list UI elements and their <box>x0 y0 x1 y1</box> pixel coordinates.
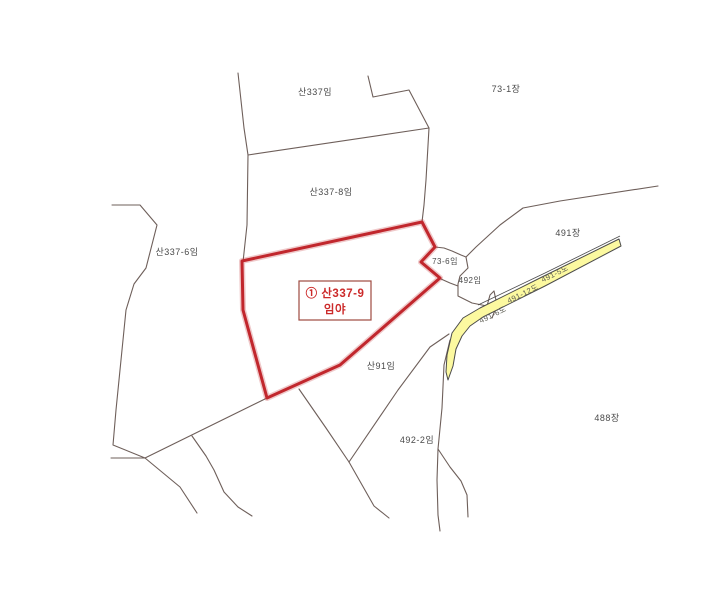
boundary-line <box>466 186 658 257</box>
highlight-label-line1: ① 산337-9 <box>306 286 365 300</box>
boundary-line <box>248 128 429 155</box>
boundary-line <box>238 73 248 262</box>
parcel-label-san91: 산91임 <box>367 360 396 371</box>
boundary-line <box>441 279 458 286</box>
parcel-label-492: 492임 <box>459 276 482 285</box>
boundary-line <box>422 128 429 222</box>
highlight-label-line2: 임야 <box>324 302 346 316</box>
parcel-label-492-2: 492-2임 <box>400 434 434 445</box>
boundary-line <box>437 449 440 531</box>
boundary-line <box>192 436 252 516</box>
parcel-label-73-1: 73-1장 <box>492 84 521 94</box>
boundary-line <box>368 76 429 128</box>
boundary-line <box>349 462 389 518</box>
boundary-line <box>145 398 267 458</box>
road-parcel <box>446 236 621 380</box>
boundary-line <box>299 389 349 462</box>
boundary-line <box>112 205 157 458</box>
parcel-label-491: 491장 <box>555 228 580 238</box>
boundary-line <box>145 458 197 513</box>
parcel-label-73-6: 73-6임 <box>432 257 458 266</box>
parcel-label-san337-8: 산337-8임 <box>309 186 352 197</box>
road-labels: 491-5도 491-12도 491-6도 <box>478 263 570 325</box>
boundary-line <box>435 247 466 257</box>
parcel-label-488: 488장 <box>594 413 619 423</box>
parcel-labels: 산337임 73-1장 산337-8임 산337-6임 73-6임 492임 4… <box>155 84 619 445</box>
road-label-491-12: 491-12도 <box>506 282 540 305</box>
cadastral-map: 산337임 73-1장 산337-8임 산337-6임 73-6임 492임 4… <box>0 0 706 600</box>
parcel-label-san337: 산337임 <box>298 86 332 97</box>
road-edge-line <box>478 236 620 305</box>
boundary-line <box>438 449 468 517</box>
parcel-boundaries <box>111 73 658 531</box>
highlight-label-box: ① 산337-9 임야 <box>299 281 371 320</box>
parcel-label-san337-6: 산337-6임 <box>155 246 198 257</box>
cadastral-map-svg: 산337임 73-1장 산337-8임 산337-6임 73-6임 492임 4… <box>0 0 706 600</box>
road-shape <box>446 239 621 380</box>
